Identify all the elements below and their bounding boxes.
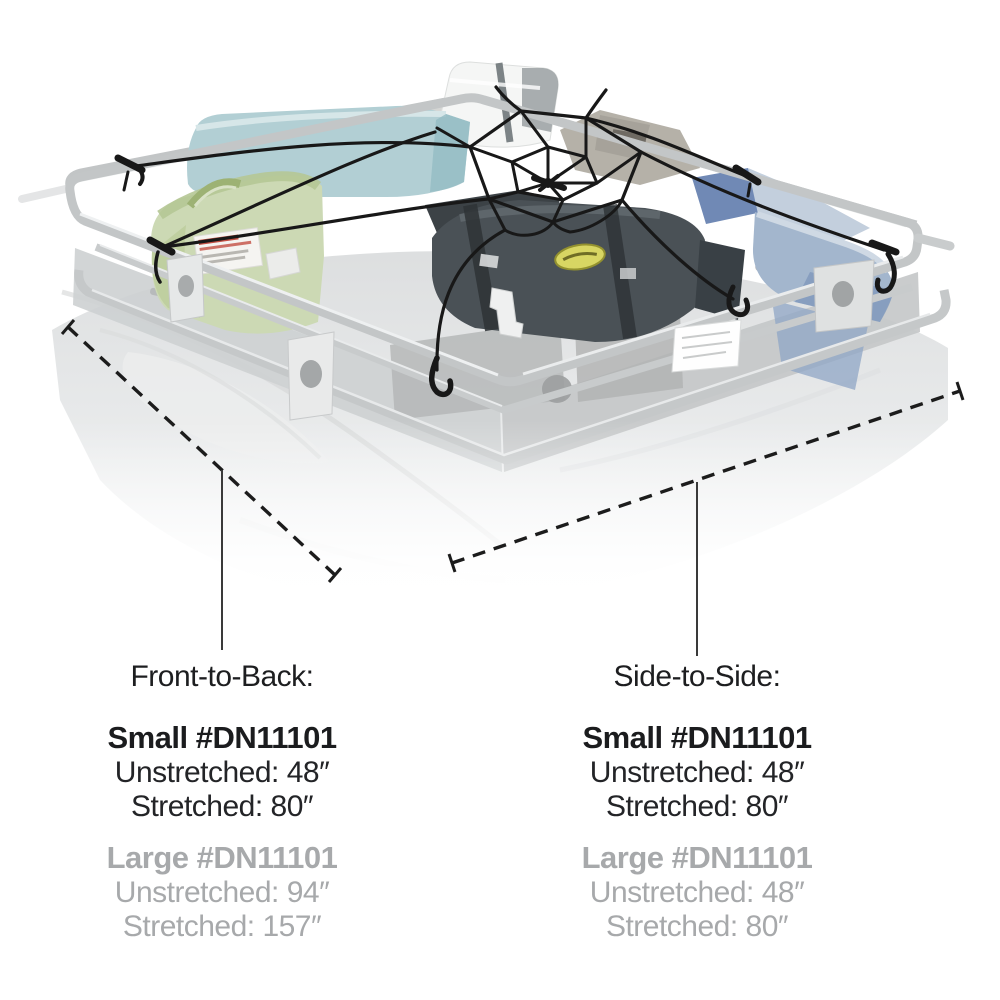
small-net-unstretched: Unstretched: 48″ xyxy=(507,756,887,790)
large-net-unstretched: Unstretched: 48″ xyxy=(507,876,887,910)
large-net-stretched: Stretched: 80″ xyxy=(507,910,887,944)
small-net-specs: Small #DN11101 Unstretched: 48″ Stretche… xyxy=(507,720,887,824)
side-to-side-label: Side-to-Side: xyxy=(507,660,887,694)
product-illustration xyxy=(0,0,1000,660)
large-net-stretched: Stretched: 157″ xyxy=(32,910,412,944)
large-net-specs: Large #DN11101 Unstretched: 94″ Stretche… xyxy=(32,840,412,944)
small-net-stretched: Stretched: 80″ xyxy=(507,790,887,824)
side-to-side-specs: Side-to-Side: Small #DN11101 Unstretched… xyxy=(507,660,887,960)
small-net-stretched: Stretched: 80″ xyxy=(32,790,412,824)
large-net-name: Large #DN11101 xyxy=(32,840,412,876)
small-net-name: Small #DN11101 xyxy=(507,720,887,756)
small-net-specs: Small #DN11101 Unstretched: 48″ Stretche… xyxy=(32,720,412,824)
small-net-unstretched: Unstretched: 48″ xyxy=(32,756,412,790)
front-to-back-specs: Front-to-Back: Small #DN11101 Unstretche… xyxy=(32,660,412,960)
reflective-sticker xyxy=(672,320,741,372)
small-net-name: Small #DN11101 xyxy=(32,720,412,756)
large-net-name: Large #DN11101 xyxy=(507,840,887,876)
product-diagram: Front-to-Back: Small #DN11101 Unstretche… xyxy=(0,0,1000,1000)
large-net-unstretched: Unstretched: 94″ xyxy=(32,876,412,910)
front-to-back-label: Front-to-Back: xyxy=(32,660,412,694)
large-net-specs: Large #DN11101 Unstretched: 48″ Stretche… xyxy=(507,840,887,944)
corner-hook xyxy=(872,243,896,252)
fade-overlay xyxy=(0,420,1000,610)
